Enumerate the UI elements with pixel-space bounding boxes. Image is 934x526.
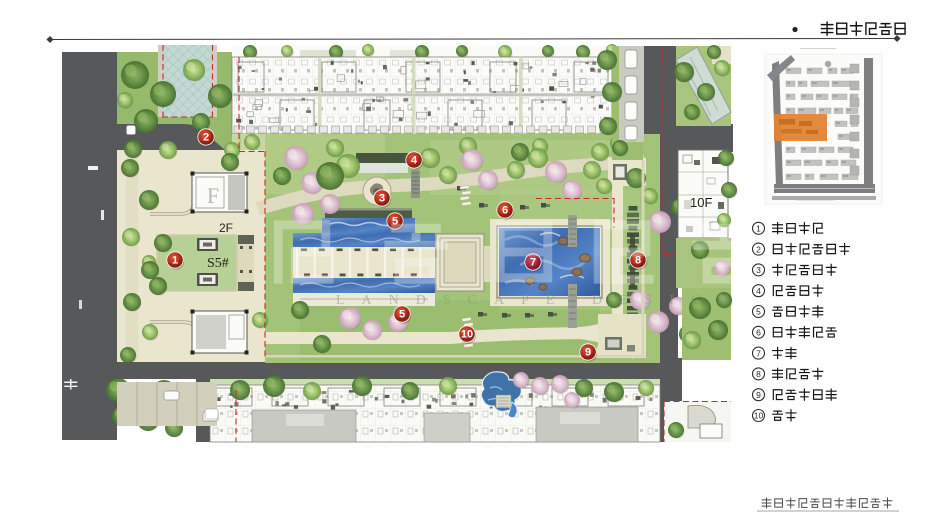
- svg-text:6: 6: [756, 328, 761, 338]
- svg-text:6: 6: [502, 205, 508, 217]
- svg-text:4: 4: [756, 286, 761, 296]
- svg-text:9: 9: [585, 347, 591, 359]
- svg-text:2: 2: [756, 244, 761, 254]
- svg-text:3: 3: [379, 193, 385, 205]
- svg-text:3: 3: [756, 265, 761, 275]
- svg-text:8: 8: [756, 369, 761, 379]
- svg-text:7: 7: [530, 257, 536, 269]
- svg-text:S5#: S5#: [207, 256, 229, 271]
- svg-text:5: 5: [399, 309, 405, 321]
- svg-text:F: F: [207, 183, 219, 208]
- svg-text:7: 7: [756, 348, 761, 358]
- svg-text:2: 2: [203, 132, 209, 144]
- svg-text:LANDSCAPE DESIGN: LANDSCAPE DESIGN: [336, 293, 745, 308]
- svg-text:10: 10: [461, 329, 473, 341]
- svg-text:2F: 2F: [219, 221, 233, 235]
- svg-text:9: 9: [756, 390, 761, 400]
- svg-text:5: 5: [756, 307, 761, 317]
- svg-text:1: 1: [172, 255, 178, 267]
- svg-text:1: 1: [756, 224, 761, 234]
- svg-text:10: 10: [754, 411, 764, 421]
- svg-text:10F: 10F: [690, 195, 712, 210]
- svg-text:4: 4: [411, 155, 418, 167]
